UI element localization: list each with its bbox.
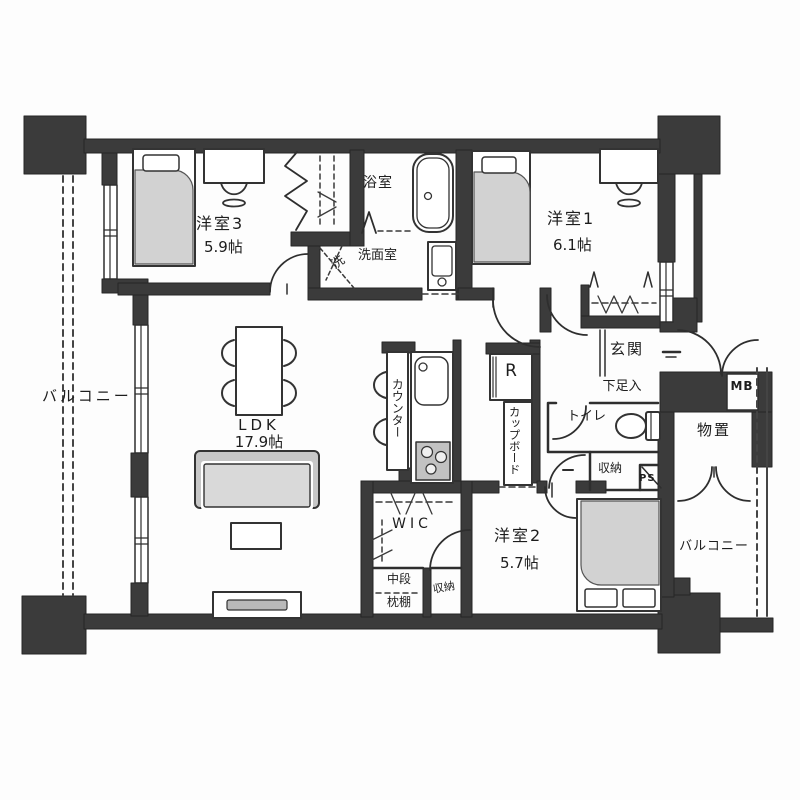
desk-bedroom1 bbox=[600, 149, 658, 207]
pillar-top-left bbox=[24, 116, 86, 174]
chair-icon bbox=[221, 183, 247, 194]
pillar-bottom-right bbox=[658, 593, 720, 653]
label-pipe-space: PS bbox=[639, 473, 656, 484]
label-hall-storage: 収納 bbox=[598, 462, 622, 475]
room-label-bedroom2: 洋室2 bbox=[494, 527, 542, 545]
room-label-ldk: LDK bbox=[219, 417, 299, 434]
room-label-washroom: 洗面室 bbox=[358, 249, 397, 263]
room-size-bedroom1: 6.1帖 bbox=[553, 237, 592, 254]
room-label-entrance: 玄関 bbox=[610, 341, 644, 358]
room-label-balcony-right: バルコニー bbox=[670, 540, 758, 554]
coffee-table bbox=[231, 523, 281, 549]
entrance-step-line bbox=[600, 330, 605, 376]
bathtub-icon bbox=[413, 154, 453, 232]
label-counter: カウンター bbox=[390, 378, 403, 438]
pillow bbox=[623, 589, 655, 607]
room-label-toilet: トイレ bbox=[567, 410, 606, 424]
label-shelf-pillow: 枕棚 bbox=[377, 596, 421, 609]
door-bedroom2 bbox=[545, 487, 576, 518]
pillow bbox=[585, 589, 617, 607]
door-storage-room-right bbox=[716, 467, 750, 501]
label-refrigerator: R bbox=[490, 362, 532, 381]
door-entrance bbox=[678, 330, 721, 374]
chair-icon bbox=[616, 183, 642, 194]
room-label-wic: WIC bbox=[374, 517, 450, 532]
tv-board bbox=[213, 592, 301, 618]
room-label-bathroom: 浴室 bbox=[363, 176, 393, 191]
bed-bedroom2 bbox=[577, 499, 661, 611]
stove-icon bbox=[416, 442, 450, 480]
tv-icon bbox=[227, 600, 287, 610]
pillow bbox=[143, 155, 179, 171]
room-size-bedroom2: 5.7帖 bbox=[500, 555, 539, 572]
bed-bedroom3 bbox=[133, 149, 195, 266]
door-meter-box bbox=[722, 340, 758, 376]
room-label-bedroom1: 洋室1 bbox=[547, 210, 595, 228]
closet-open-notches bbox=[590, 272, 652, 287]
pillar-bottom-left bbox=[22, 596, 86, 654]
room-label-balcony-left: バルコニー bbox=[42, 388, 132, 405]
door-storage-room-left bbox=[678, 467, 712, 501]
pillar-top-right bbox=[658, 116, 720, 174]
label-shoe-cabinet: 下足入 bbox=[584, 380, 660, 394]
room-label-bedroom3: 洋室3 bbox=[196, 215, 244, 233]
closet3-folding-door bbox=[285, 152, 307, 230]
door-bedroom3 bbox=[270, 254, 308, 292]
washstand-icon bbox=[428, 242, 456, 290]
label-meter-box: MB bbox=[725, 380, 759, 393]
kitchen-unit bbox=[411, 352, 453, 483]
sofa bbox=[195, 451, 319, 510]
toilet-icon bbox=[616, 412, 660, 440]
floorplan-canvas: バルコニー 洋室3 5.9帖 浴室 洗面室 洗 洋室1 6.1帖 玄関 下足入 … bbox=[0, 0, 800, 800]
bed-bedroom1 bbox=[472, 151, 530, 264]
pillow bbox=[482, 157, 516, 173]
room-size-bedroom3: 5.9帖 bbox=[204, 239, 243, 256]
room-size-ldk: 17.9帖 bbox=[219, 434, 299, 451]
label-cupboard: カップボード bbox=[508, 406, 521, 475]
hanger-icon bbox=[598, 296, 638, 313]
room-label-storage-room: 物置 bbox=[676, 422, 752, 439]
stool-icon bbox=[374, 372, 386, 445]
label-shelf-mid: 中段 bbox=[377, 573, 421, 586]
dining-table bbox=[222, 327, 296, 415]
desk-bedroom3 bbox=[204, 149, 264, 207]
closet3-rails bbox=[320, 156, 334, 228]
